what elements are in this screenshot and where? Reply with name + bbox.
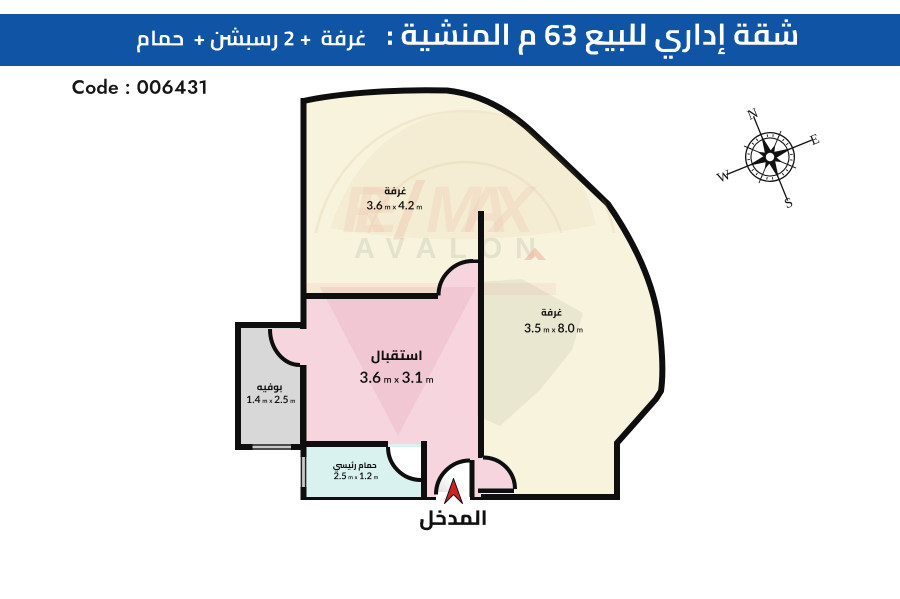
svg-text:N: N bbox=[745, 106, 760, 124]
svg-text:W: W bbox=[715, 167, 734, 186]
svg-text:E: E bbox=[808, 132, 822, 149]
svg-text:S: S bbox=[782, 195, 795, 212]
